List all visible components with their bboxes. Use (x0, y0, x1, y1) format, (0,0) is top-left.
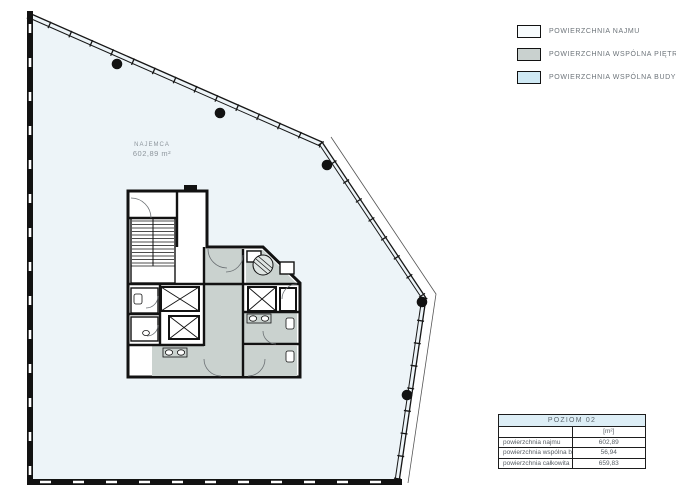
column-dot (112, 59, 123, 70)
elevator-shaft (169, 316, 199, 339)
legend-swatch-wspolna-pietra (517, 48, 541, 61)
table-row: powierzchnia najmu 602,89 (499, 437, 646, 448)
core-roof-stub (184, 185, 197, 192)
row-value: 602,89 (572, 437, 646, 448)
row-value: 659,83 (572, 458, 646, 469)
row-value: 56,94 (572, 448, 646, 459)
row-label: powierzchnia całkowita (499, 458, 573, 469)
tenant-name-text: NAJEMCA (134, 142, 170, 148)
tenant-area-label: NAJEMCA 602,89 m² (133, 142, 171, 158)
unit-header-cell: [m²] (572, 427, 646, 438)
elevator-shaft (248, 287, 276, 311)
service-shaft (280, 288, 296, 311)
legend-swatch-najmu (517, 25, 541, 38)
legend-item-najmu: POWIERZCHNIA NAJMU (517, 24, 676, 38)
legend-item-wspolna-budynku: POWIERZCHNIA WSPÓLNA BUDYNKU (517, 70, 676, 84)
tenant-area-text: 602,89 m² (133, 149, 171, 158)
row-label: powierzchnia wspólna budynku (499, 448, 573, 459)
row-label: powierzchnia najmu (499, 437, 573, 448)
south-wall (27, 479, 402, 485)
table-row: powierzchnia wspólna budynku 56,94 (499, 448, 646, 459)
column-dot (417, 297, 428, 308)
table-row: powierzchnia całkowita 659,83 (499, 458, 646, 469)
column-dot (215, 108, 226, 119)
table-title: POZIOM 02 (499, 415, 646, 427)
legend-label: POWIERZCHNIA NAJMU (549, 28, 640, 35)
legend-label: POWIERZCHNIA WSPÓLNA PIĘTRA (549, 51, 676, 58)
legend-item-wspolna-pietra: POWIERZCHNIA WSPÓLNA PIĘTRA (517, 47, 676, 61)
column-dot (402, 390, 413, 401)
areas-table: POZIOM 02 [m²] powierzchnia najmu 602,89… (498, 414, 646, 469)
table-unit-row: [m²] (499, 427, 646, 438)
elevator-shaft (161, 287, 199, 311)
column-dot (322, 160, 333, 171)
west-wall (27, 11, 33, 484)
floor-plan-sheet: { "legend": { "items": [ { "label": "POW… (0, 0, 676, 498)
legend-label: POWIERZCHNIA WSPÓLNA BUDYNKU (549, 74, 676, 81)
spiral-feature (253, 255, 273, 275)
legend: POWIERZCHNIA NAJMU POWIERZCHNIA WSPÓLNA … (517, 24, 676, 84)
empty-cell (499, 427, 573, 438)
legend-swatch-wspolna-budynku (517, 71, 541, 84)
table-header-row: POZIOM 02 (499, 415, 646, 427)
